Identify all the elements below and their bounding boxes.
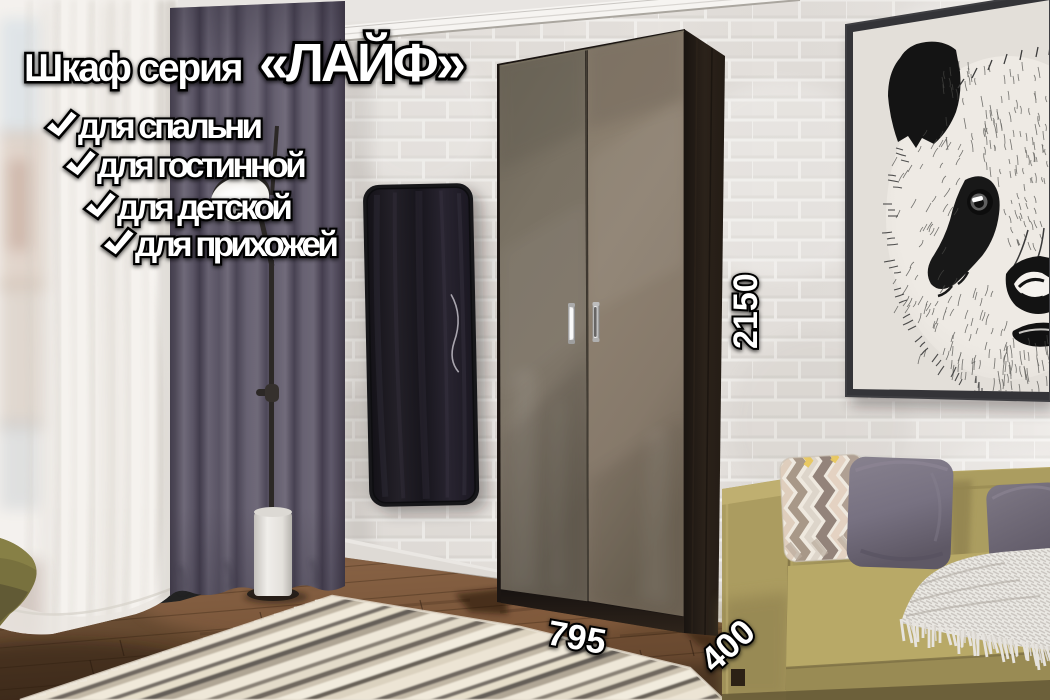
svg-text:для прихожей: для прихожей <box>135 225 337 264</box>
svg-text:Шкаф серия: Шкаф серия <box>24 47 242 90</box>
svg-text:для спальни: для спальни <box>78 107 262 146</box>
svg-text:для детской: для детской <box>117 188 291 227</box>
svg-text:«ЛАЙФ»: «ЛАЙФ» <box>259 32 464 93</box>
svg-text:2150: 2150 <box>727 273 765 349</box>
svg-text:для гостинной: для гостинной <box>97 146 305 185</box>
